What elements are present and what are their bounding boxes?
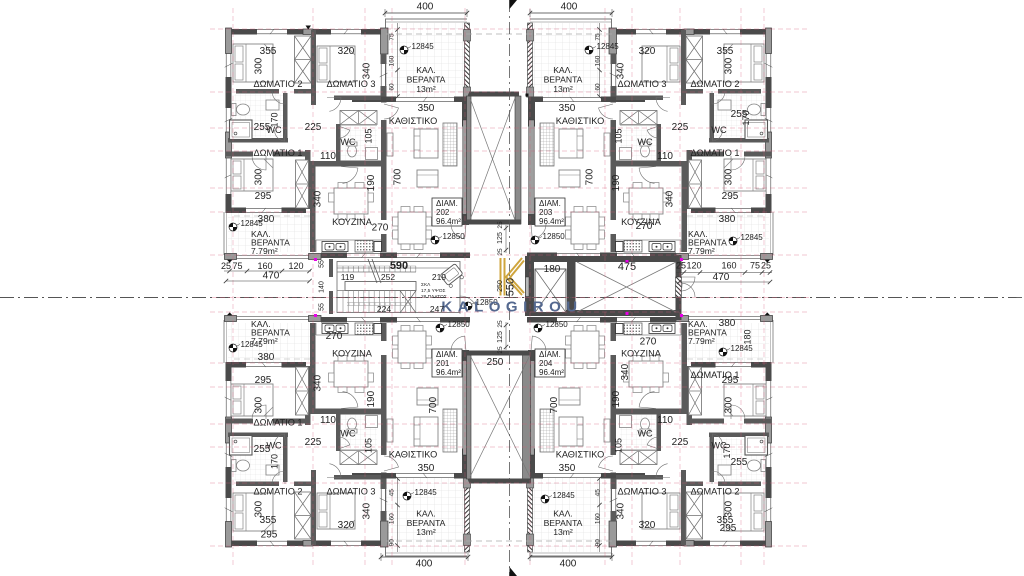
svg-text:110: 110 xyxy=(320,151,336,162)
svg-text:75: 75 xyxy=(232,261,242,271)
svg-text:12850: 12850 xyxy=(443,232,466,241)
svg-text:270: 270 xyxy=(640,337,657,348)
svg-text:25: 25 xyxy=(761,261,771,271)
svg-text:380: 380 xyxy=(258,352,275,363)
svg-text:WC: WC xyxy=(266,441,282,451)
svg-text:7.79m²: 7.79m² xyxy=(688,336,715,346)
svg-text:270: 270 xyxy=(372,223,389,234)
svg-text:170: 170 xyxy=(270,112,280,127)
svg-text:400: 400 xyxy=(561,2,578,13)
svg-text:320: 320 xyxy=(639,520,656,531)
svg-text:25: 25 xyxy=(497,248,504,256)
svg-text:ΔΩΜΑΤΙΟ 2: ΔΩΜΑΤΙΟ 2 xyxy=(690,79,739,89)
svg-text:125: 125 xyxy=(497,331,504,343)
svg-text:ΚΑΘΙΣΤΙΚΟ: ΚΑΘΙΣΤΙΚΟ xyxy=(556,116,605,126)
svg-text:120: 120 xyxy=(686,261,701,271)
svg-text:320: 320 xyxy=(338,520,355,531)
svg-text:ΚΟΥΖΙΝΑ: ΚΟΥΖΙΝΑ xyxy=(332,217,373,227)
svg-text:12850: 12850 xyxy=(448,320,471,329)
svg-text:7.79m²: 7.79m² xyxy=(688,246,715,256)
svg-text:300: 300 xyxy=(724,500,735,517)
svg-text:12845: 12845 xyxy=(415,488,438,497)
svg-text:300: 300 xyxy=(254,500,265,517)
svg-text:160: 160 xyxy=(595,513,602,524)
svg-text:ΔΙΑΜ.: ΔΙΑΜ. xyxy=(539,199,561,208)
svg-text:190: 190 xyxy=(366,174,377,191)
svg-text:180: 180 xyxy=(544,264,561,275)
svg-text:WC: WC xyxy=(637,429,653,439)
svg-text:225: 225 xyxy=(305,122,322,133)
svg-text:ΔΩΜΑΤΙΟ 1: ΔΩΜΑΤΙΟ 1 xyxy=(253,418,302,428)
svg-text:25: 25 xyxy=(497,346,504,354)
svg-text:ΚΟΥΖΙΝΑ: ΚΟΥΖΙΝΑ xyxy=(621,349,662,359)
svg-text:12845: 12845 xyxy=(597,42,620,51)
svg-text:45: 45 xyxy=(389,489,396,497)
svg-text:13m²: 13m² xyxy=(553,84,573,94)
svg-text:350: 350 xyxy=(418,463,435,474)
svg-text:12850: 12850 xyxy=(546,320,569,329)
svg-text:700: 700 xyxy=(585,168,596,185)
svg-text:170: 170 xyxy=(270,454,280,469)
svg-text:270: 270 xyxy=(326,331,343,342)
svg-text:190: 190 xyxy=(366,390,377,407)
svg-text:12845: 12845 xyxy=(741,233,764,242)
svg-text:105: 105 xyxy=(364,128,374,143)
svg-text:380: 380 xyxy=(719,214,736,225)
svg-text:340: 340 xyxy=(620,363,631,380)
svg-text:140: 140 xyxy=(319,281,326,293)
svg-text:300: 300 xyxy=(254,168,265,185)
svg-text:ΔΩΜΑΤΙΟ 3: ΔΩΜΑΤΙΟ 3 xyxy=(617,79,666,89)
svg-text:12845: 12845 xyxy=(412,42,435,51)
svg-text:340: 340 xyxy=(313,190,324,207)
svg-text:ΚΑΘΙΣΤΙΚΟ: ΚΑΘΙΣΤΙΚΟ xyxy=(389,116,438,126)
svg-text:250: 250 xyxy=(497,280,504,292)
svg-text:75: 75 xyxy=(595,33,602,41)
svg-text:400: 400 xyxy=(560,559,577,570)
svg-text:380: 380 xyxy=(258,214,275,225)
svg-text:60: 60 xyxy=(389,83,396,91)
svg-text:13m²: 13m² xyxy=(416,84,436,94)
svg-text:160: 160 xyxy=(389,513,396,524)
svg-text:295: 295 xyxy=(261,530,278,541)
svg-text:252: 252 xyxy=(381,272,395,282)
svg-text:295: 295 xyxy=(255,375,272,386)
svg-text:96.4m²: 96.4m² xyxy=(539,217,564,226)
svg-text:160: 160 xyxy=(721,261,736,271)
svg-text:7.79m²: 7.79m² xyxy=(251,336,278,346)
svg-text:ΔΩΜΑΤΙΟ 3: ΔΩΜΑΤΙΟ 3 xyxy=(617,487,666,497)
svg-text:225: 225 xyxy=(672,122,689,133)
svg-text:25: 25 xyxy=(221,261,231,271)
svg-text:550: 550 xyxy=(505,278,517,296)
svg-text:700: 700 xyxy=(393,168,404,185)
svg-text:25: 25 xyxy=(497,221,504,229)
svg-text:300: 300 xyxy=(724,57,735,74)
svg-text:300: 300 xyxy=(724,168,735,185)
svg-text:ΔΩΜΑΤΙΟ 1: ΔΩΜΑΤΙΟ 1 xyxy=(253,148,302,158)
svg-text:700: 700 xyxy=(549,396,560,413)
svg-text:ΚΑΘΙΣΤΙΚΟ: ΚΑΘΙΣΤΙΚΟ xyxy=(389,450,438,460)
svg-text:202: 202 xyxy=(436,208,450,217)
svg-text:ΔΩΜΑΤΙΟ 2: ΔΩΜΑΤΙΟ 2 xyxy=(253,487,302,497)
svg-text:ΔΩΜΑΤΙΟ 2: ΔΩΜΑΤΙΟ 2 xyxy=(253,79,302,89)
svg-text:170: 170 xyxy=(741,110,751,125)
svg-text:ΔΩΜΑΤΙΟ 3: ΔΩΜΑΤΙΟ 3 xyxy=(326,487,375,497)
svg-text:350: 350 xyxy=(559,463,576,474)
svg-text:340: 340 xyxy=(665,190,676,207)
svg-text:300: 300 xyxy=(254,396,265,413)
svg-text:WC: WC xyxy=(340,137,356,147)
svg-text:120: 120 xyxy=(288,261,303,271)
svg-text:247: 247 xyxy=(430,304,444,314)
svg-text:400: 400 xyxy=(416,559,433,570)
svg-text:12845: 12845 xyxy=(553,491,576,500)
svg-text:320: 320 xyxy=(338,46,355,57)
svg-text:110: 110 xyxy=(657,415,673,426)
svg-text:WC: WC xyxy=(637,137,653,147)
svg-text:ΔΩΜΑΤΙΟ 2: ΔΩΜΑΤΙΟ 2 xyxy=(690,487,739,497)
svg-text:12850: 12850 xyxy=(543,232,566,241)
svg-text:340: 340 xyxy=(313,374,324,391)
svg-text:ΔΩΜΑΤΙΟ 1: ΔΩΜΑΤΙΟ 1 xyxy=(690,148,739,158)
svg-text:96.4m²: 96.4m² xyxy=(436,368,461,377)
svg-text:470: 470 xyxy=(263,271,280,282)
svg-text:17,5 ΥΨΟΣ: 17,5 ΥΨΟΣ xyxy=(421,288,446,294)
svg-text:204: 204 xyxy=(539,359,553,368)
svg-text:190: 190 xyxy=(611,390,622,407)
svg-text:203: 203 xyxy=(539,208,553,217)
svg-text:ΚΟΥΖΙΝΑ: ΚΟΥΖΙΝΑ xyxy=(332,349,373,359)
svg-text:ΚΟΥΖΙΝΑ: ΚΟΥΖΙΝΑ xyxy=(621,217,662,227)
svg-text:590: 590 xyxy=(390,260,408,272)
svg-text:340: 340 xyxy=(362,62,373,79)
svg-text:160: 160 xyxy=(389,55,396,66)
svg-text:ΔΙΑΜ.: ΔΙΑΜ. xyxy=(436,199,458,208)
svg-text:ΔΙΑΜ.: ΔΙΑΜ. xyxy=(436,350,458,359)
svg-text:224: 224 xyxy=(377,304,391,314)
svg-text:96.4m²: 96.4m² xyxy=(539,368,564,377)
svg-text:75: 75 xyxy=(389,33,396,41)
svg-text:90: 90 xyxy=(389,539,396,547)
svg-text:300: 300 xyxy=(724,396,735,413)
svg-text:255: 255 xyxy=(731,457,748,468)
svg-text:ΔΙΑΜ.: ΔΙΑΜ. xyxy=(539,350,561,359)
svg-text:13m²: 13m² xyxy=(416,527,436,537)
svg-text:355: 355 xyxy=(260,46,277,57)
svg-text:295: 295 xyxy=(255,191,272,202)
svg-text:225: 225 xyxy=(305,437,322,448)
svg-text:110: 110 xyxy=(657,151,673,162)
svg-text:320: 320 xyxy=(639,46,656,57)
svg-text:170: 170 xyxy=(722,443,732,458)
svg-text:350: 350 xyxy=(418,103,435,114)
svg-text:470: 470 xyxy=(713,272,730,283)
svg-text:201: 201 xyxy=(436,359,450,368)
svg-text:WC: WC xyxy=(711,125,727,135)
svg-text:25: 25 xyxy=(676,261,686,271)
svg-text:55: 55 xyxy=(319,303,326,311)
svg-text:295: 295 xyxy=(722,191,739,202)
svg-text:350: 350 xyxy=(559,103,576,114)
svg-text:28 ΠΛΑΤΟΣ: 28 ΠΛΑΤΟΣ xyxy=(421,294,447,300)
svg-text:340: 340 xyxy=(616,62,627,79)
svg-text:190: 190 xyxy=(611,174,622,191)
svg-text:45: 45 xyxy=(595,489,602,497)
svg-text:475: 475 xyxy=(618,261,636,273)
svg-text:160: 160 xyxy=(595,55,602,66)
svg-text:105: 105 xyxy=(364,438,374,453)
svg-text:110: 110 xyxy=(320,415,336,426)
svg-text:KALOGIROU: KALOGIROU xyxy=(441,299,582,316)
svg-text:90: 90 xyxy=(595,539,602,547)
svg-text:55: 55 xyxy=(319,260,326,268)
svg-text:7.79m²: 7.79m² xyxy=(251,246,278,256)
svg-text:ΔΩΜΑΤΙΟ 3: ΔΩΜΑΤΙΟ 3 xyxy=(326,79,375,89)
svg-text:75: 75 xyxy=(750,261,760,271)
svg-text:WC: WC xyxy=(340,429,356,439)
svg-text:225: 225 xyxy=(672,437,689,448)
svg-text:250: 250 xyxy=(487,357,504,368)
svg-text:340: 340 xyxy=(362,502,373,519)
svg-text:105: 105 xyxy=(614,128,624,143)
svg-text:340: 340 xyxy=(616,502,627,519)
svg-text:219: 219 xyxy=(432,272,446,282)
svg-text:105: 105 xyxy=(614,438,624,453)
svg-text:355: 355 xyxy=(717,46,734,57)
svg-text:25: 25 xyxy=(497,320,504,328)
svg-text:60: 60 xyxy=(595,83,602,91)
svg-text:400: 400 xyxy=(417,2,434,13)
svg-text:ΣΚΛ: ΣΚΛ xyxy=(421,282,431,288)
svg-text:96.4m²: 96.4m² xyxy=(436,217,461,226)
svg-text:119: 119 xyxy=(341,272,355,282)
svg-text:13m²: 13m² xyxy=(553,527,573,537)
svg-text:295: 295 xyxy=(722,375,739,386)
svg-text:700: 700 xyxy=(428,396,439,413)
svg-text:ΚΑΘΙΣΤΙΚΟ: ΚΑΘΙΣΤΙΚΟ xyxy=(556,450,605,460)
svg-text:180: 180 xyxy=(743,329,753,344)
svg-text:300: 300 xyxy=(254,57,265,74)
svg-text:125: 125 xyxy=(497,232,504,244)
